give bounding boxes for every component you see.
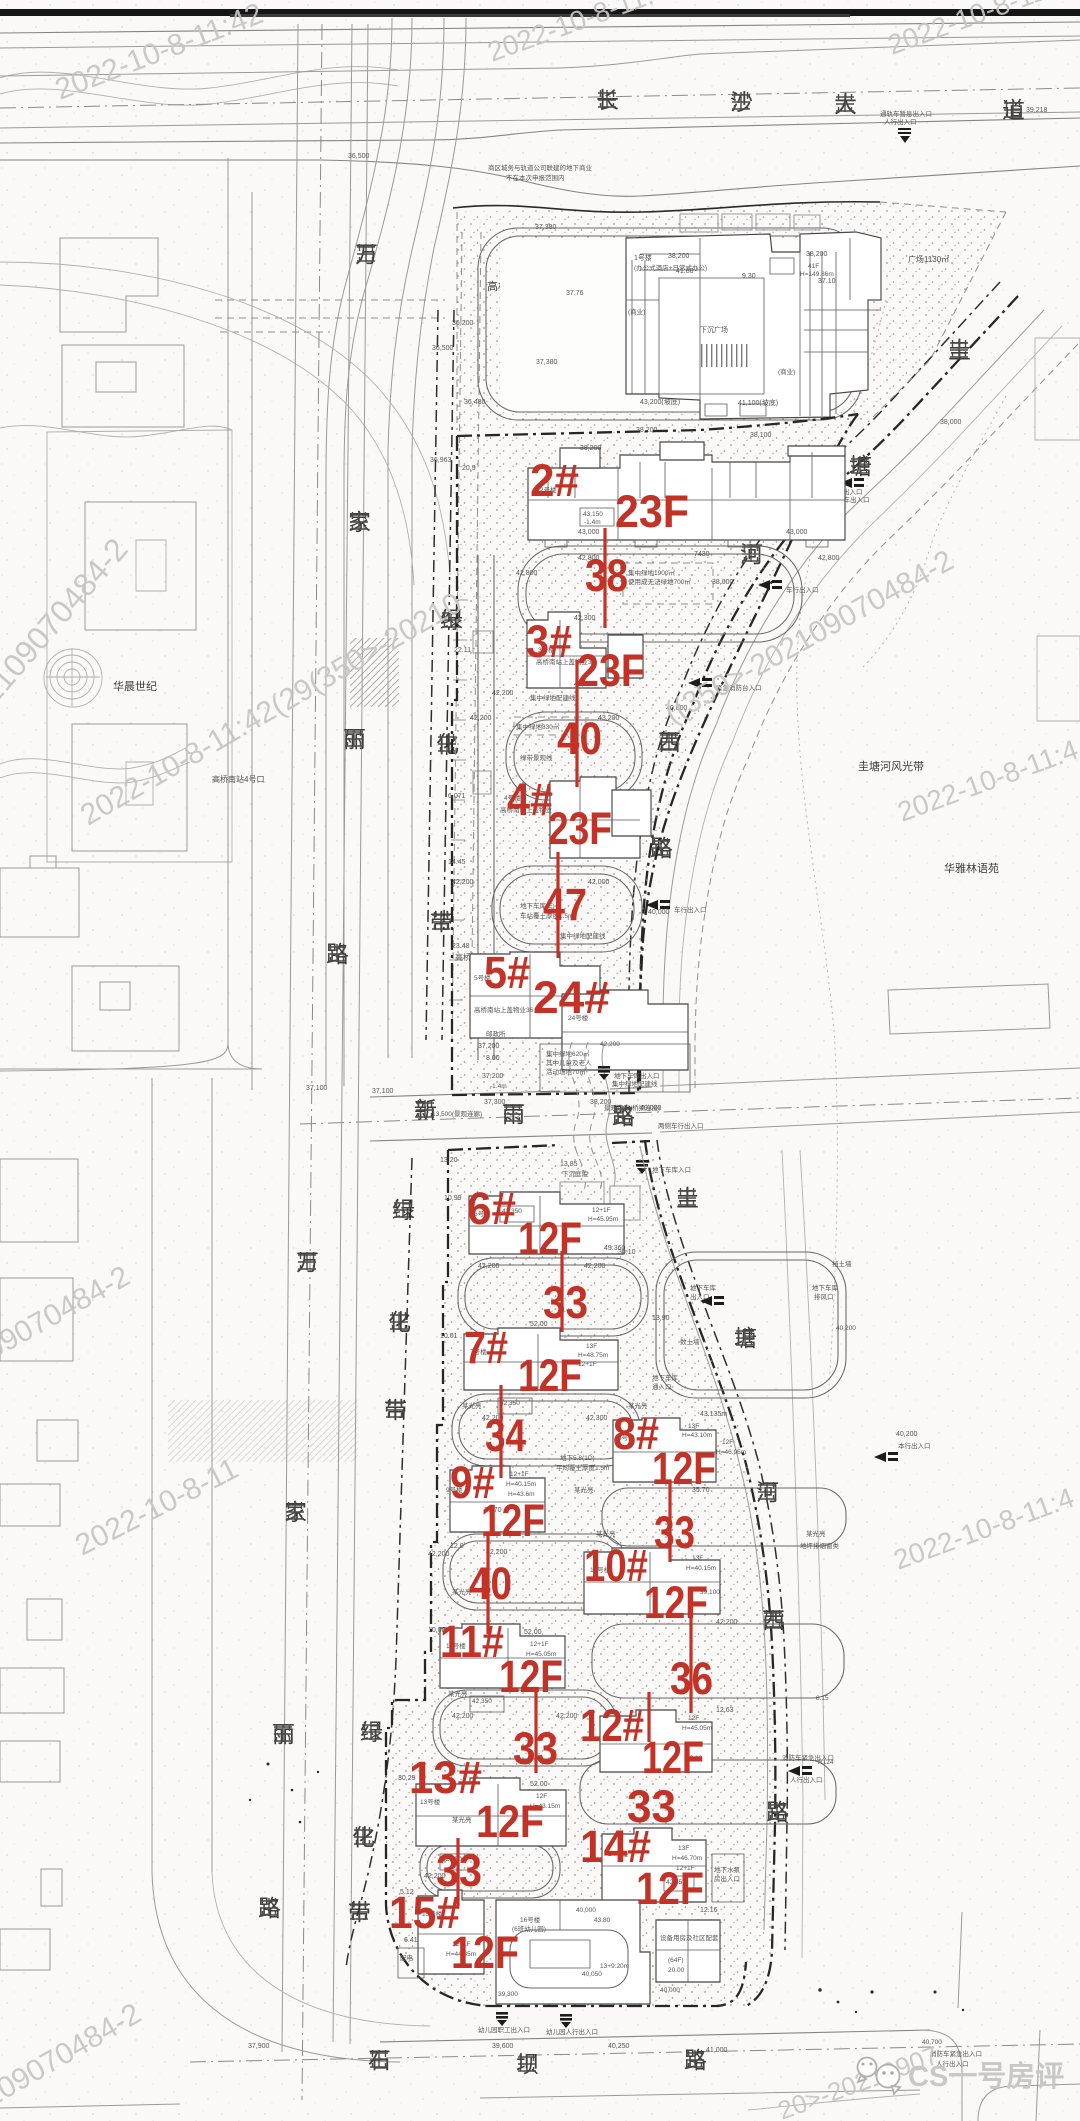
svg-text:某光亮: 某光亮 [806, 1529, 826, 1538]
svg-text:37,380: 37,380 [535, 224, 557, 231]
svg-text:13,85: 13,85 [560, 1161, 578, 1168]
svg-text:42,000: 42,000 [588, 879, 610, 886]
svg-text:37,300: 37,300 [484, 1099, 506, 1106]
svg-text:使用成无法绿地700㎡: 使用成无法绿地700㎡ [628, 577, 691, 586]
svg-text:12.63: 12.63 [716, 1707, 734, 1714]
svg-text:42,200: 42,200 [452, 879, 474, 886]
svg-text:13F: 13F [688, 1423, 699, 1430]
svg-text:40,200: 40,200 [836, 1325, 856, 1332]
svg-text:42,800: 42,800 [818, 555, 840, 562]
svg-text:13,20: 13,20 [440, 1157, 458, 1164]
svg-text:幼儿园人行出入口: 幼儿园人行出入口 [546, 2027, 598, 2036]
svg-text:集中绿地配建线: 集中绿地配建线 [530, 693, 576, 702]
svg-text:12F: 12F [636, 1863, 704, 1914]
svg-text:52,00: 52,00 [524, 1629, 542, 1636]
svg-text:13F: 13F [586, 1343, 597, 1350]
svg-text:幼儿园职工出入口: 幼儿园职工出入口 [478, 2025, 530, 2034]
svg-text:40,050: 40,050 [582, 1971, 602, 1978]
svg-text:8.15: 8.15 [816, 1695, 829, 1702]
svg-text:49:360: 49:360 [604, 1245, 626, 1252]
svg-text:13,500(景观连廊): 13,500(景观连廊) [432, 1109, 482, 1118]
svg-text:47: 47 [543, 879, 587, 930]
svg-text:20,9: 20,9 [462, 465, 476, 472]
svg-text:7#: 7# [464, 1322, 508, 1373]
svg-text:41F: 41F [808, 263, 819, 270]
svg-text:4#: 4# [507, 774, 553, 825]
svg-text:37,380: 37,380 [536, 359, 558, 366]
svg-text:23F: 23F [615, 486, 689, 537]
svg-text:地下车库: 地下车库 [652, 1373, 679, 1382]
svg-text:22.11: 22.11 [454, 647, 471, 654]
svg-text:12F: 12F [518, 1350, 582, 1401]
svg-text:23F: 23F [577, 645, 645, 696]
svg-text:42,800: 42,800 [516, 570, 538, 577]
svg-text:40,000: 40,000 [648, 909, 670, 916]
svg-text:地下水泵: 地下水泵 [714, 1865, 741, 1874]
svg-text:6.071: 6.071 [448, 793, 466, 800]
svg-text:37,900: 37,900 [248, 2043, 270, 2050]
svg-text:11#: 11# [440, 1616, 504, 1667]
svg-text:下沉庭院: 下沉庭院 [562, 1169, 589, 1178]
svg-text:房出入口: 房出入口 [714, 1874, 740, 1883]
svg-text:36,500: 36,500 [348, 153, 370, 160]
svg-text:H=43.10m: H=43.10m [682, 1432, 712, 1439]
svg-text:本行出入口: 本行出入口 [898, 1441, 931, 1450]
svg-text:23F: 23F [548, 803, 612, 854]
svg-text:36,500: 36,500 [432, 345, 454, 352]
svg-text:12F: 12F [722, 1439, 733, 1446]
svg-text:36,963: 36,963 [430, 457, 452, 464]
svg-text:13F: 13F [678, 1845, 689, 1852]
svg-text:42,200: 42,200 [470, 715, 492, 722]
svg-text:34: 34 [485, 1410, 526, 1461]
svg-text:12F: 12F [518, 1213, 582, 1264]
svg-text:5#: 5# [484, 947, 530, 998]
svg-text:两侧车行出入口: 两侧车行出入口 [658, 1121, 704, 1130]
svg-text:37.10: 37.10 [818, 278, 836, 285]
svg-text:人行出入口: 人行出入口 [790, 1775, 823, 1784]
svg-text:33: 33 [513, 1723, 558, 1774]
svg-text:10#: 10# [584, 1540, 648, 1591]
svg-text:(64F): (64F) [668, 1957, 684, 1964]
svg-text:H=149.86m: H=149.86m [800, 271, 834, 278]
svg-text:42,350: 42,350 [472, 1698, 492, 1705]
svg-text:华雅林语苑: 华雅林语苑 [944, 861, 999, 875]
svg-text:42,350: 42,350 [500, 1400, 520, 1407]
svg-text:地坪排烟窗类: 地坪排烟窗类 [800, 1541, 840, 1550]
svg-text:-1.4m: -1.4m [490, 1083, 507, 1090]
svg-text:1号楼: 1号楼 [634, 253, 652, 262]
svg-text:37.76: 37.76 [566, 290, 584, 297]
svg-text:H=40.15m: H=40.15m [686, 1565, 716, 1572]
svg-text:地下车库出入口: 地下车库出入口 [614, 1071, 660, 1080]
svg-text:41,000: 41,000 [706, 2047, 728, 2054]
svg-text:不在本次申报范围内: 不在本次申报范围内 [506, 173, 565, 182]
svg-text:13,90: 13,90 [652, 1315, 670, 1322]
svg-text:43,200(坡底): 43,200(坡底) [640, 397, 680, 406]
svg-text:集中绿地1900㎡: 集中绿地1900㎡ [628, 568, 675, 577]
svg-text:集中绿地830㎡: 集中绿地830㎡ [516, 722, 560, 731]
svg-text:某光亮: 某光亮 [448, 1689, 468, 1698]
svg-text:9.30: 9.30 [742, 273, 756, 280]
svg-text:52.00: 52.00 [530, 1781, 548, 1788]
svg-text:H=45.95m: H=45.95m [588, 1216, 618, 1223]
svg-text:12F: 12F [451, 1927, 519, 1978]
svg-text:H=48.75m: H=48.75m [578, 1352, 608, 1359]
svg-text:下沉广场: 下沉广场 [700, 325, 728, 334]
svg-text:40,200: 40,200 [896, 1431, 918, 1438]
svg-text:41,100(坡底): 41,100(坡底) [738, 398, 778, 407]
svg-text:43,150: 43,150 [583, 511, 603, 518]
svg-text:13#: 13# [409, 1752, 482, 1803]
svg-text:H=40.15m: H=40.15m [506, 1481, 536, 1488]
svg-text:配电: 配电 [400, 1953, 414, 1962]
svg-text:42,200: 42,200 [584, 1263, 606, 1270]
svg-text:43.135m: 43.135m [700, 1411, 727, 1418]
svg-text:12+1F: 12+1F [510, 1471, 529, 1478]
svg-text:20.00: 20.00 [668, 1967, 685, 1974]
svg-text:通入口: 通入口 [652, 1382, 672, 1391]
svg-text:43.80: 43.80 [594, 1917, 611, 1924]
svg-text:3#: 3# [526, 616, 572, 667]
svg-text:10,99: 10,99 [444, 1195, 462, 1202]
svg-text:12,0: 12,0 [450, 1543, 464, 1550]
svg-text:高桥南站4号口: 高桥南站4号口 [212, 774, 264, 784]
svg-text:通轨车暂息出入口: 通轨车暂息出入口 [880, 109, 932, 118]
svg-text:车行出入口: 车行出入口 [674, 905, 707, 914]
svg-text:38: 38 [585, 550, 628, 601]
svg-text:38,200: 38,200 [668, 253, 690, 260]
svg-text:某光亮: 某光亮 [462, 1401, 482, 1410]
svg-text:6.41: 6.41 [404, 1937, 418, 1944]
svg-text:绿带景观线: 绿带景观线 [520, 753, 553, 762]
svg-text:6#: 6# [467, 1183, 516, 1234]
svg-text:设备用房及社区配套: 设备用房及社区配套 [660, 1933, 719, 1942]
svg-text:42,200: 42,200 [428, 1551, 450, 1558]
svg-text:H=46.70m: H=46.70m [672, 1855, 702, 1862]
svg-text:37,200: 37,200 [478, 1043, 500, 1050]
svg-text:40,000: 40,000 [576, 1907, 596, 1914]
svg-text:37,100: 37,100 [372, 1088, 394, 1095]
svg-text:邮政所: 邮政所 [486, 1029, 506, 1038]
svg-text:40: 40 [469, 1558, 512, 1609]
svg-text:活动场地70㎡: 活动场地70㎡ [546, 1067, 586, 1076]
svg-text:7430: 7430 [694, 551, 710, 558]
svg-text:-1.4m: -1.4m [584, 519, 601, 526]
svg-text:景观连廊(桥梁连接): 景观连廊(桥梁连接) [604, 1103, 660, 1112]
svg-text:38,000: 38,000 [712, 579, 734, 586]
svg-text:广场1130㎡: 广场1130㎡ [908, 254, 949, 264]
svg-text:38,200: 38,200 [806, 251, 828, 258]
svg-text:12F: 12F [476, 1796, 544, 1847]
svg-text:38,200: 38,200 [580, 445, 602, 452]
svg-text:H=45.05m: H=45.05m [682, 1725, 712, 1732]
svg-text:数土墙: 数土墙 [680, 1337, 700, 1346]
svg-text:商区城务与轨道公司联建的地下商业: 商区城务与轨道公司联建的地下商业 [488, 163, 593, 172]
svg-text:43,000: 43,000 [578, 529, 600, 536]
svg-text:12+1F: 12+1F [530, 1641, 549, 1648]
svg-text:33: 33 [543, 1277, 588, 1328]
svg-text:(办公式酒店+日常式办公): (办公式酒店+日常式办公) [634, 263, 707, 272]
svg-text:华晨世纪: 华晨世纪 [113, 679, 157, 693]
svg-text:40,000: 40,000 [660, 1987, 680, 1994]
svg-text:16号楼: 16号楼 [520, 1915, 541, 1924]
svg-text:36,200: 36,200 [452, 320, 474, 327]
svg-text:12F: 12F [644, 1577, 708, 1628]
svg-text:39,300: 39,300 [498, 1991, 518, 1998]
svg-text:42,300: 42,300 [574, 615, 596, 622]
svg-text:2#: 2# [530, 455, 579, 506]
svg-text:24#: 24# [533, 972, 610, 1023]
svg-text:集中绿地配建线: 集中绿地配建线 [560, 931, 606, 940]
svg-text:某光亮: 某光亮 [596, 1529, 616, 1538]
svg-text:H=46.95m: H=46.95m [716, 1449, 746, 1456]
svg-text:36: 36 [670, 1653, 713, 1704]
svg-text:挡土墙: 挡土墙 [832, 1259, 852, 1268]
svg-text:高桥南站上盖物业36: 高桥南站上盖物业36 [474, 1005, 534, 1014]
svg-text:42,200: 42,200 [478, 1263, 500, 1270]
svg-text:42,200: 42,200 [556, 1713, 578, 1720]
svg-text:地下5.8(1D): 地下5.8(1D) [560, 1453, 595, 1462]
svg-text:集中绿地620㎡: 集中绿地620㎡ [546, 1049, 590, 1058]
svg-text:某光亮: 某光亮 [574, 1485, 594, 1494]
svg-text:CS一号房评: CS一号房评 [908, 2060, 1064, 2093]
svg-text:36,480: 36,480 [464, 399, 486, 406]
svg-text:37,200: 37,200 [482, 1073, 504, 1080]
svg-text:圭塘河风光带: 圭塘河风光带 [858, 759, 924, 773]
svg-text:12F: 12F [481, 1495, 545, 1546]
svg-text:12F: 12F [652, 1443, 716, 1494]
svg-text:13+9:20m: 13+9:20m [600, 1963, 629, 1970]
svg-text:某光亮: 某光亮 [452, 1815, 472, 1824]
svg-text:39,600: 39,600 [492, 2043, 514, 2050]
svg-text:42,200: 42,200 [716, 1619, 738, 1626]
svg-text:排风口: 排风口 [814, 1292, 834, 1301]
svg-text:38,000: 38,000 [940, 419, 962, 426]
svg-text:42,200: 42,200 [492, 690, 514, 697]
svg-text:集中绿地配建线: 集中绿地配建线 [612, 1079, 658, 1088]
svg-text:14.45: 14.45 [448, 859, 466, 866]
svg-text:37,100: 37,100 [306, 1085, 328, 1092]
svg-text:12F: 12F [499, 1651, 563, 1702]
svg-text:人行出入口: 人行出入口 [884, 117, 917, 126]
svg-text:R124: R124 [818, 1759, 834, 1766]
svg-text:42,300: 42,300 [586, 1415, 608, 1422]
svg-text:车行出入口: 车行出入口 [786, 585, 819, 594]
svg-text:12#: 12# [580, 1700, 644, 1751]
svg-text:39,218: 39,218 [1026, 107, 1048, 114]
svg-text:43,000: 43,000 [786, 529, 808, 536]
svg-text:23.48: 23.48 [452, 943, 470, 950]
svg-text:12F: 12F [688, 1715, 699, 1722]
svg-text:10.01: 10.01 [440, 1333, 458, 1340]
svg-text:8.00: 8.00 [486, 1055, 500, 1062]
svg-text:(商业): (商业) [778, 367, 795, 376]
svg-text:地下车库: 地下车库 [812, 1283, 839, 1292]
svg-text:地下车库: 地下车库 [690, 1283, 717, 1292]
svg-text:平均覆土厚度1.5m: 平均覆土厚度1.5m [556, 1463, 609, 1472]
svg-text:15#: 15# [389, 1887, 460, 1938]
svg-text:40,250: 40,250 [608, 2043, 630, 2050]
svg-text:41.80: 41.80 [676, 268, 694, 275]
svg-text:33: 33 [654, 1507, 695, 1558]
svg-text:12+1F: 12+1F [592, 1207, 611, 1214]
svg-text:12F: 12F [642, 1732, 704, 1783]
svg-text:40: 40 [557, 713, 602, 764]
svg-text:42,200: 42,200 [452, 1713, 474, 1720]
svg-text:(商业): (商业) [628, 307, 645, 316]
svg-text:出入口: 出入口 [690, 1292, 710, 1301]
